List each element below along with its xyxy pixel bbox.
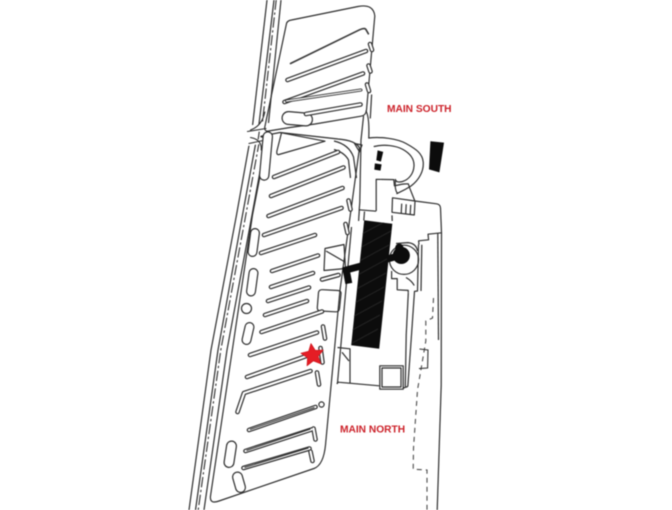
svg-text:MAIN SOUTH: MAIN SOUTH: [387, 104, 452, 115]
svg-text:MAIN NORTH: MAIN NORTH: [340, 425, 405, 436]
